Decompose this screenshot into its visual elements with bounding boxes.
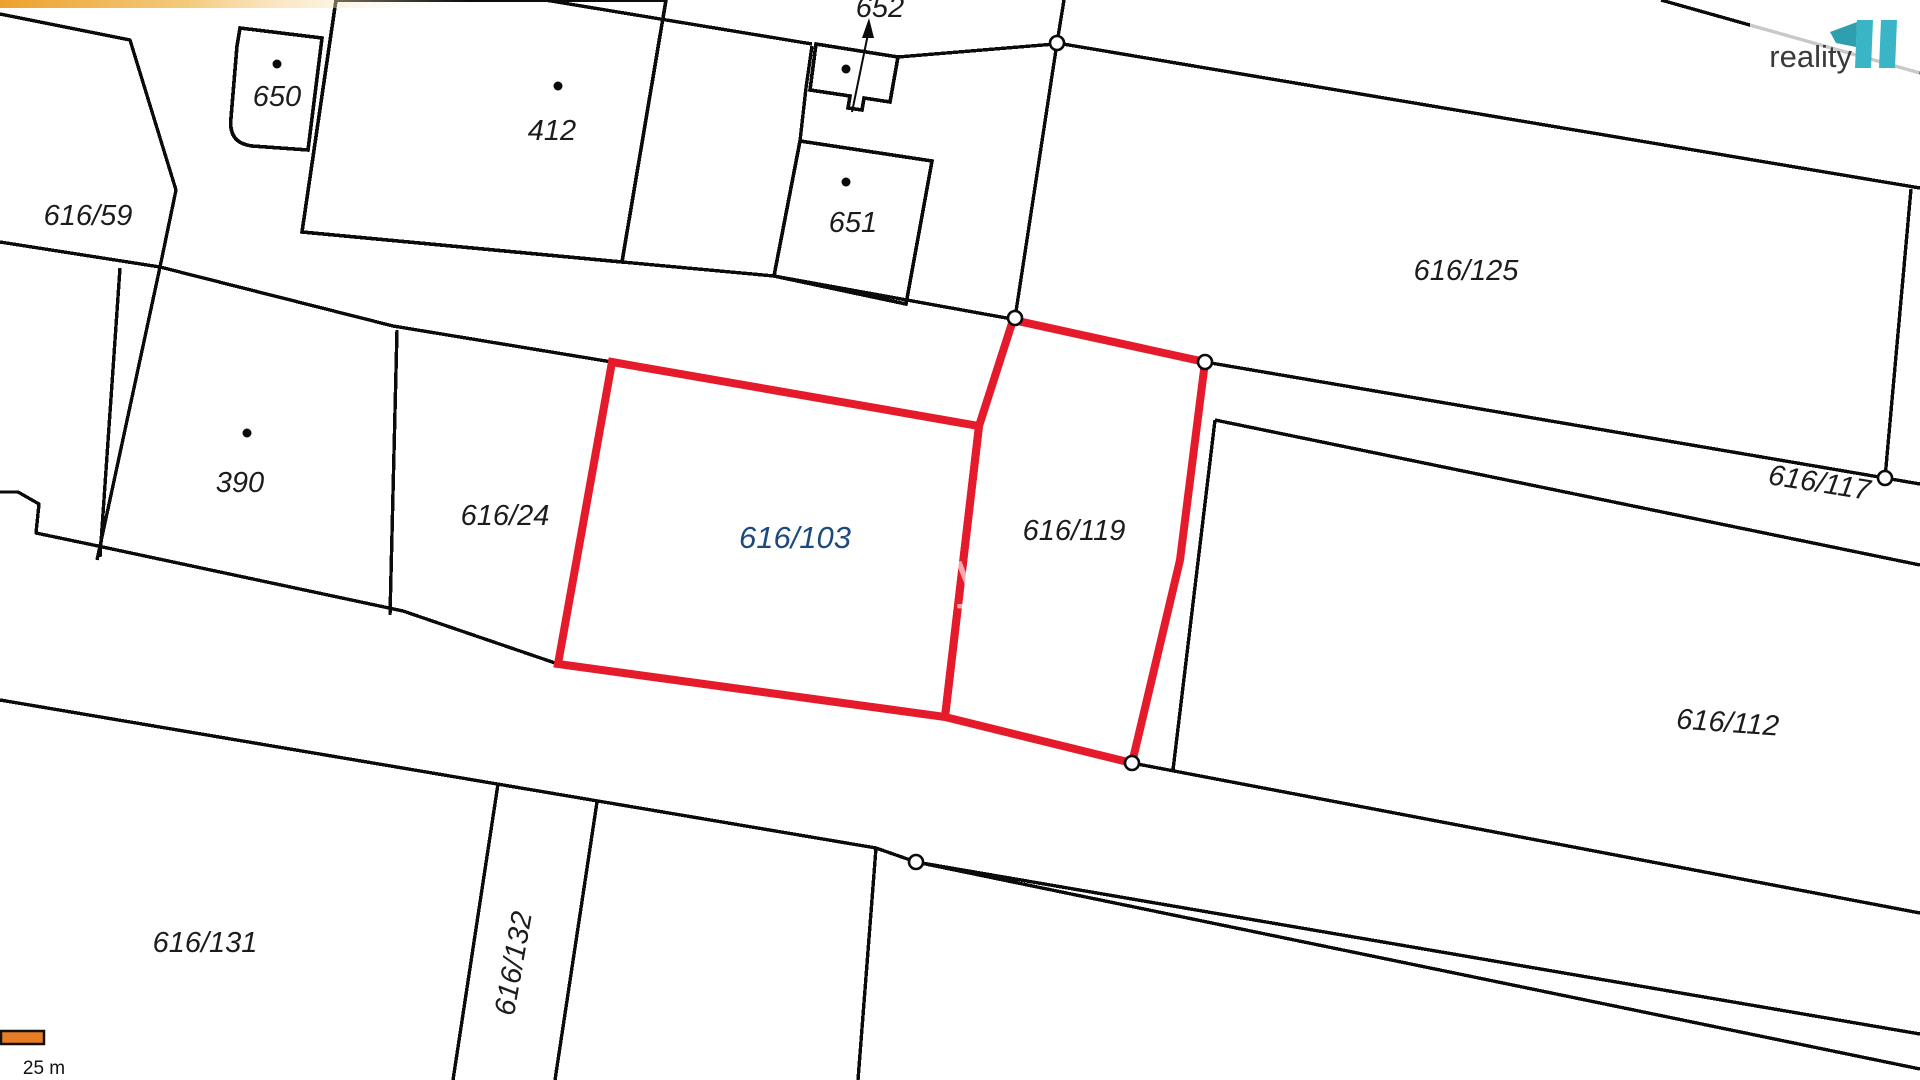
- parcel-label-616-131: 616/131: [153, 927, 258, 959]
- parcel-label-616-24: 616/24: [461, 500, 550, 532]
- parcel-label-650: 650: [253, 81, 301, 113]
- parcel-label-616-59: 616/59: [44, 200, 133, 232]
- vertex-marker: [1878, 471, 1892, 485]
- watermark-text: reality: [817, 537, 988, 609]
- parcel-label-652: 652: [856, 0, 904, 24]
- dot-652: [842, 65, 851, 74]
- map-canvas: 652 650 412 651 616/59 616/125 390 616/2…: [0, 0, 1920, 1080]
- logo-bar-2: [1879, 20, 1897, 68]
- logo-text: reality: [1769, 39, 1852, 74]
- vertex-marker: [1198, 355, 1212, 369]
- scale-bar-label: 25 m: [23, 1058, 65, 1079]
- top-banner-gradient: [0, 0, 470, 8]
- parcel-label-616-125: 616/125: [1414, 255, 1520, 287]
- parcel-label-412: 412: [528, 115, 576, 147]
- parcel-label-651: 651: [829, 207, 877, 239]
- dot-390: [243, 429, 252, 438]
- scale-bar-rect: [1, 1031, 44, 1044]
- vertex-marker: [1050, 36, 1064, 50]
- vertex-marker: [909, 855, 923, 869]
- cadastral-map: 652 650 412 651 616/59 616/125 390 616/2…: [0, 0, 1920, 1080]
- dot-651: [842, 178, 851, 187]
- dot-650: [273, 60, 282, 69]
- vertex-marker: [1125, 756, 1139, 770]
- parcel-label-390: 390: [216, 467, 264, 499]
- parcel-label-616-119: 616/119: [1023, 515, 1126, 547]
- dot-412: [554, 82, 563, 91]
- vertex-marker: [1008, 311, 1022, 325]
- logo-bar-1: [1855, 20, 1873, 68]
- logo: reality: [1750, 6, 1920, 82]
